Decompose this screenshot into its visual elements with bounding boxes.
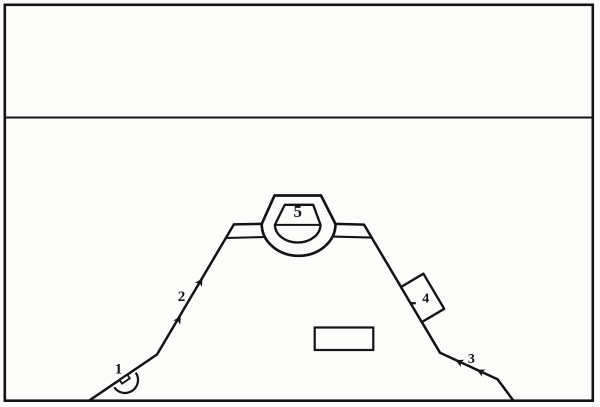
svg-text:1: 1 — [115, 362, 123, 378]
svg-text:4: 4 — [422, 292, 429, 307]
svg-text:5: 5 — [294, 202, 303, 221]
svg-text:3: 3 — [468, 352, 475, 367]
svg-text:2: 2 — [178, 289, 186, 305]
